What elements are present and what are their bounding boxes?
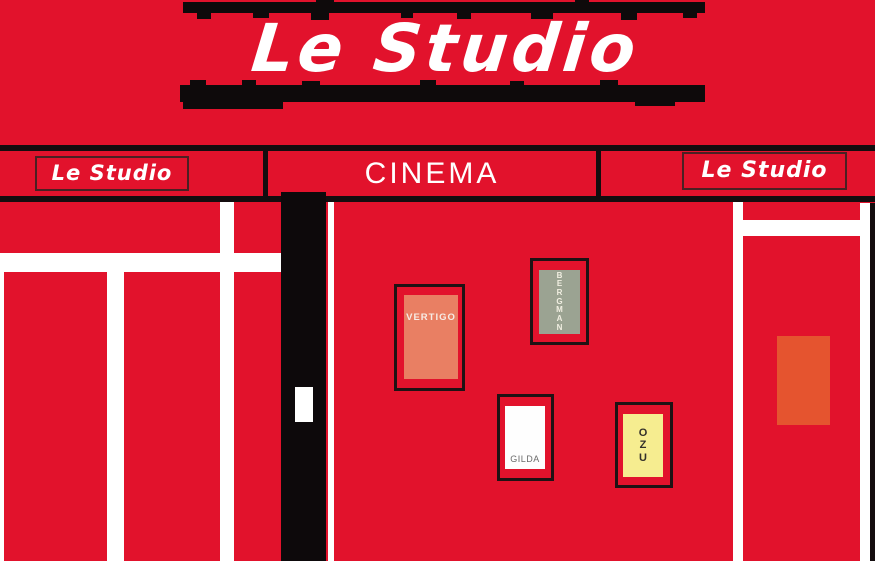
poster-vertigo-art: VERTIGO (404, 295, 458, 379)
sign-border-tick (635, 100, 675, 106)
poster-ozu-art: OZU (623, 414, 663, 477)
window-frame-horizontal-right (743, 220, 862, 236)
window-frame-horizontal-left (0, 253, 281, 272)
storefront-sign: Le Studio (180, 0, 708, 112)
poster-bergman-art: BERGMAN (539, 270, 580, 334)
door-handle (295, 387, 313, 422)
sign-border-tick (600, 80, 618, 85)
marquee-divider-right (596, 145, 601, 202)
right-window-blank-poster (777, 336, 830, 425)
marquee-left-label: Le Studio (35, 156, 189, 191)
facade-right-edge (870, 203, 875, 561)
marquee-right-label: Le Studio (682, 152, 847, 190)
sign-border-tick (302, 81, 320, 85)
poster-bergman: BERGMAN (530, 258, 589, 345)
poster-gilda-title: GILDA (510, 454, 540, 464)
poster-ozu: OZU (615, 402, 673, 488)
sign-border-tick (183, 100, 283, 109)
cinema-facade-illustration: Le Studio Le Studio CINEMA Le Studio (0, 0, 875, 561)
poster-gilda: GILDA (497, 394, 554, 481)
poster-ozu-title: OZU (638, 427, 649, 463)
marquee-cinema-label: CINEMA (268, 153, 596, 194)
marquee-top-line (0, 145, 875, 151)
sign-border-tick (242, 80, 256, 85)
door-side-frame (328, 202, 334, 561)
marquee-bottom-line (0, 196, 875, 202)
window-frame-vertical-lower (107, 272, 124, 561)
window-frame-far-right (860, 203, 870, 561)
poster-vertigo-title: VERTIGO (406, 312, 456, 323)
window-frame-vertical-right (733, 202, 743, 561)
sign-border-tick (420, 80, 436, 85)
marquee-band: Le Studio CINEMA Le Studio (0, 145, 875, 202)
sign-border-tick (190, 80, 206, 85)
poster-vertigo: VERTIGO (394, 284, 465, 391)
entrance-door (281, 192, 326, 561)
poster-gilda-art: GILDA (505, 406, 545, 469)
sign-border-tick (510, 81, 524, 85)
window-frame-vertical-left (220, 202, 234, 561)
sign-border-bottom (180, 85, 705, 102)
window-frame-left-edge (0, 272, 4, 561)
poster-bergman-title: BERGMAN (556, 272, 564, 332)
